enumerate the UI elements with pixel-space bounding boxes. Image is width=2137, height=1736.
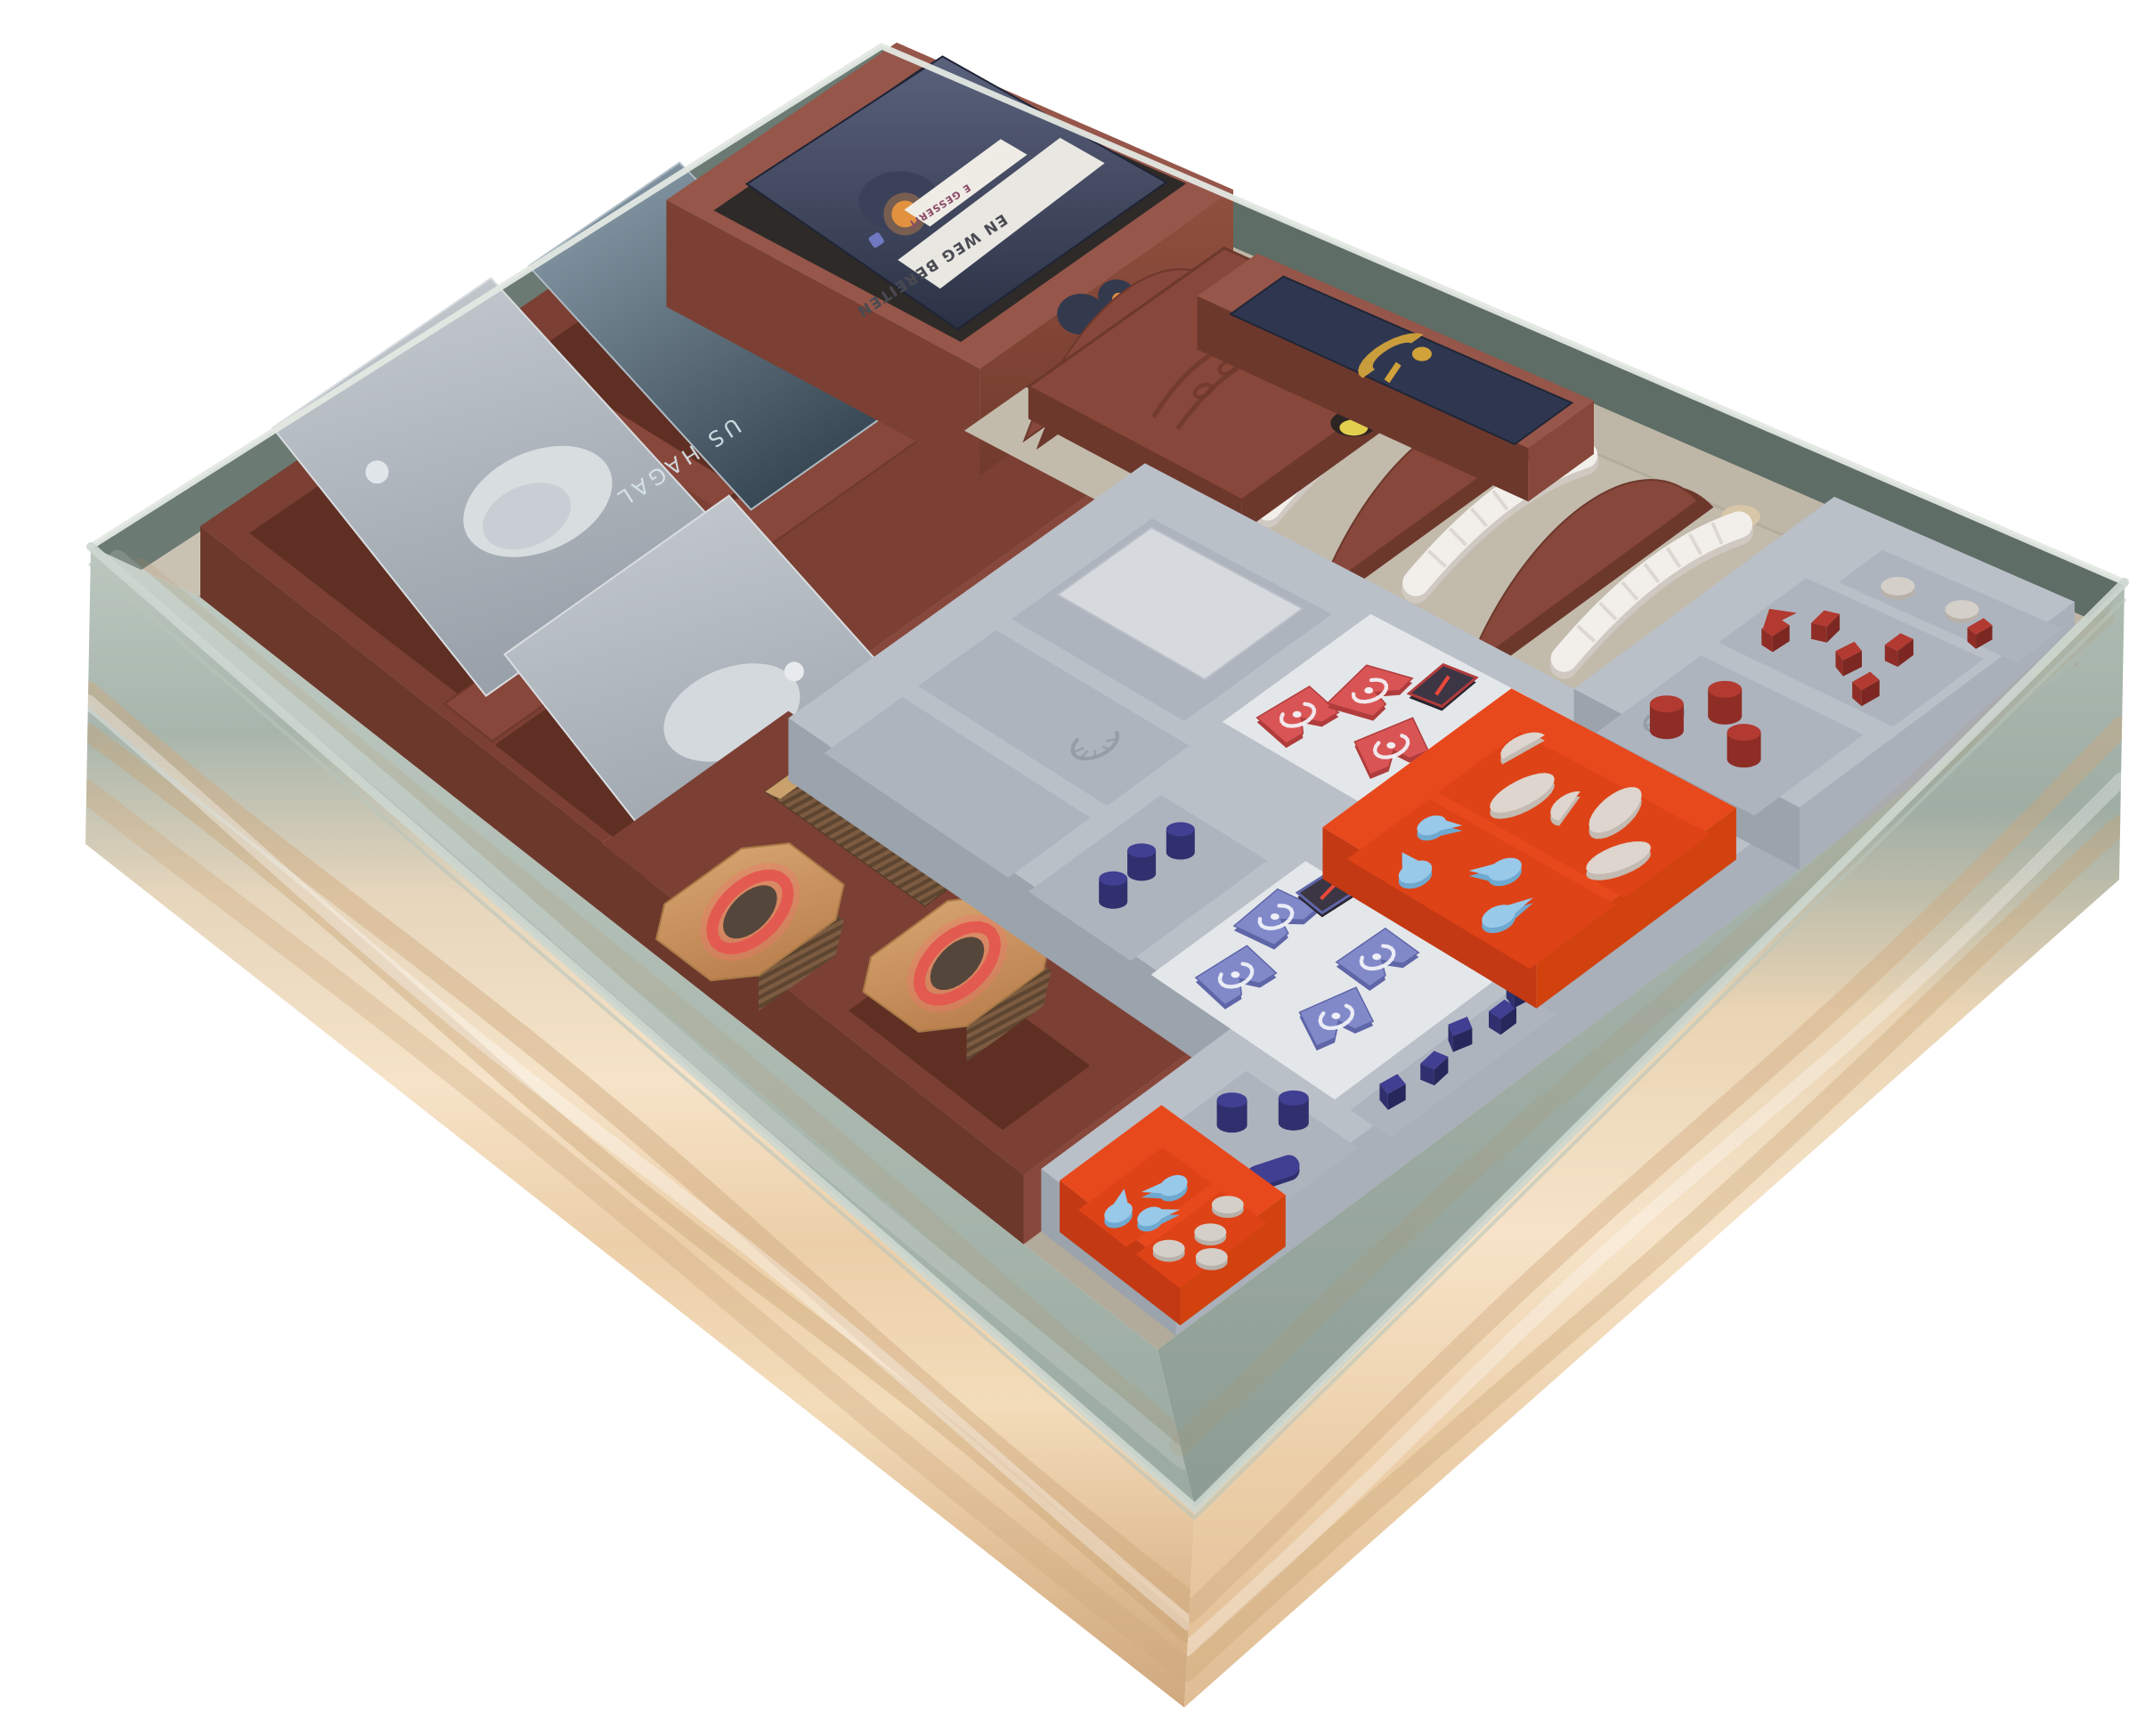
product-photo: US HAGALEN WEG BEREITENE GESSERIT [36,14,2137,1722]
photo-canvas: US HAGALEN WEG BEREITENE GESSERIT [36,14,2137,1722]
